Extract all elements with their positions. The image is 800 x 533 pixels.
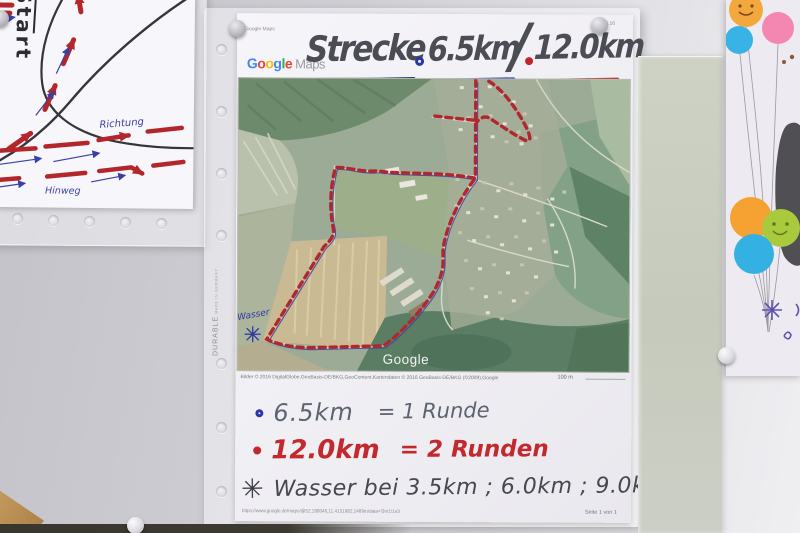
hinweg-label: Hinweg bbox=[45, 185, 81, 196]
balloon-drawing-paper bbox=[726, 0, 800, 376]
title-distance-short: 6.5km bbox=[427, 28, 520, 69]
logo-letter: o bbox=[265, 55, 273, 71]
sleeve-made-in: MADE IN GERMANY bbox=[214, 268, 219, 314]
title-distance-long: 12.0km bbox=[533, 26, 644, 67]
blue-ring-bullet bbox=[255, 409, 263, 417]
title-strecke: Strecke bbox=[305, 27, 425, 70]
note-equals: = 1 Runde bbox=[378, 398, 490, 423]
wasser-annotation bbox=[245, 326, 261, 342]
note-one-round: 6.5km = 1 Runde bbox=[255, 396, 490, 427]
punch-hole bbox=[216, 44, 227, 55]
logo-letter: g bbox=[273, 55, 281, 71]
richtung-label: Richtung bbox=[99, 117, 144, 131]
track-sketch-drawing: Start bbox=[0, 0, 195, 209]
push-pin bbox=[718, 347, 735, 364]
punch-hole bbox=[216, 106, 227, 117]
sleeve-brand-text: DURABLE MADE IN GERMANY bbox=[208, 252, 224, 356]
title-separator: / bbox=[509, 12, 531, 81]
balloon-drawing bbox=[726, 0, 800, 376]
handwritten-title: Strecke 6.5km / 12.0km bbox=[300, 21, 631, 84]
track-sketch-paper: Start bbox=[0, 0, 195, 209]
google-watermark: Google bbox=[383, 352, 430, 367]
blue-dot-bullet bbox=[415, 57, 424, 66]
footer-page-number: Seite 1 von 1 bbox=[585, 510, 617, 516]
satellite-map: Wasser Google bbox=[237, 77, 631, 373]
map-attribution: Bilder © 2016 DigitalGlobe,GeoBasis-DE/B… bbox=[241, 374, 499, 381]
push-pin bbox=[591, 17, 608, 34]
punch-hole bbox=[216, 422, 227, 433]
push-pin bbox=[127, 517, 144, 533]
red-dot-bullet bbox=[253, 446, 261, 454]
punch-hole bbox=[156, 218, 167, 229]
start-label: Start bbox=[11, 0, 36, 61]
photo-of-noticeboard: Start bbox=[0, 0, 800, 533]
note-two-rounds: 12.0km = 2 Runden bbox=[253, 434, 549, 465]
logo-letter: G bbox=[247, 55, 257, 71]
punch-hole bbox=[216, 230, 227, 241]
note-distance: 12.0km bbox=[271, 435, 380, 465]
punch-hole bbox=[84, 216, 95, 227]
balloon-strings bbox=[740, 26, 780, 332]
punch-hole bbox=[120, 217, 131, 228]
push-pin bbox=[229, 20, 246, 37]
footer-url: https://www.google.de/maps/@52.198046,11… bbox=[242, 508, 400, 515]
note-text: Wasser bei 3.5km ; 6.0km ; 9.0km bbox=[274, 473, 668, 502]
asterisk-icon: ✳ bbox=[241, 474, 264, 505]
punch-hole bbox=[216, 358, 227, 369]
empty-sheet-protector bbox=[638, 56, 722, 533]
route-map-page: Google Maps 06.06.16 GoogleMaps Strecke … bbox=[235, 13, 633, 523]
print-header-title: Google Maps bbox=[245, 26, 275, 32]
punch-hole bbox=[216, 168, 227, 179]
red-dot-bullet bbox=[525, 57, 533, 65]
punch-hole bbox=[12, 213, 23, 224]
note-distance: 6.5km bbox=[273, 398, 354, 427]
logo-letter: e bbox=[285, 55, 292, 71]
map-scale-line bbox=[586, 379, 626, 380]
sleeve-brand-name: DURABLE bbox=[213, 316, 220, 356]
note-equals: = 2 Runden bbox=[400, 436, 549, 463]
map-scale-label: 100 m bbox=[558, 375, 573, 381]
punch-hole bbox=[216, 486, 227, 497]
punch-hole bbox=[48, 215, 59, 226]
note-water-stations: ✳ Wasser bei 3.5km ; 6.0km ; 9.0km bbox=[241, 470, 667, 505]
shadow-band bbox=[0, 524, 412, 533]
